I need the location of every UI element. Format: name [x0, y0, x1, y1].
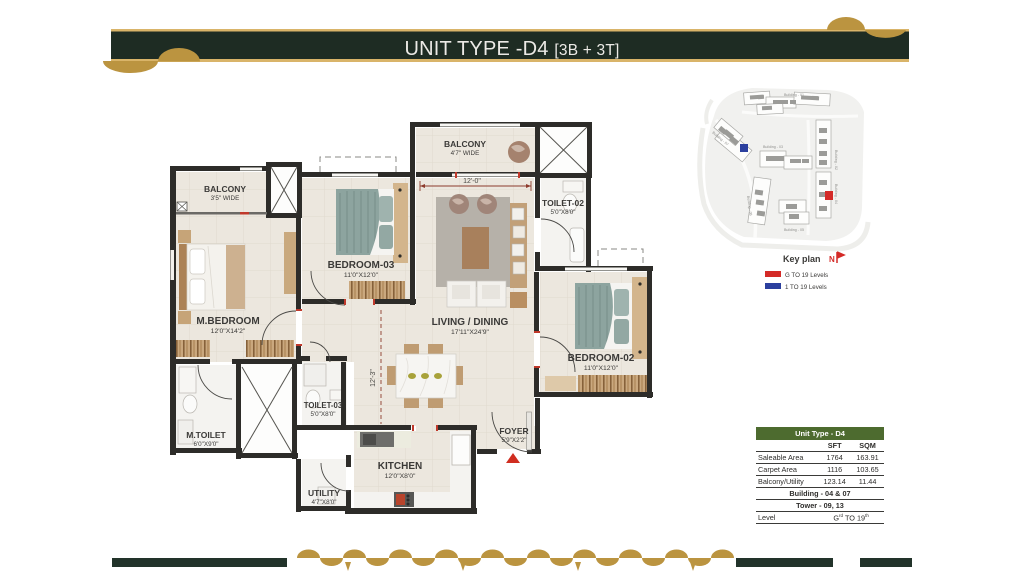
svg-text:BEDROOM-03: BEDROOM-03 — [328, 260, 395, 271]
svg-text:N: N — [829, 255, 835, 264]
svg-text:5'0"X8'0": 5'0"X8'0" — [550, 209, 575, 216]
svg-text:5'0"X8'0": 5'0"X8'0" — [310, 411, 335, 418]
svg-text:Building - 05: Building - 05 — [784, 228, 804, 232]
svg-text:BEDROOM-02: BEDROOM-02 — [568, 353, 635, 364]
svg-text:4'7" WIDE: 4'7" WIDE — [451, 150, 480, 157]
svg-text:12'-0": 12'-0" — [463, 178, 481, 185]
svg-text:Building - 01: Building - 01 — [784, 93, 804, 97]
svg-text:UNIT TYPE -D4 [3B + 3T]: UNIT TYPE -D4 [3B + 3T] — [405, 38, 620, 60]
svg-text:3'5" WIDE: 3'5" WIDE — [211, 195, 240, 202]
svg-text:LIVING / DINING: LIVING / DINING — [432, 317, 509, 328]
svg-text:KITCHEN: KITCHEN — [378, 461, 422, 472]
svg-text:17'11"X24'9": 17'11"X24'9" — [451, 329, 489, 336]
svg-text:Key plan: Key plan — [783, 254, 821, 264]
svg-text:M.BEDROOM: M.BEDROOM — [196, 316, 259, 327]
svg-text:Building - 03: Building - 03 — [763, 145, 783, 149]
svg-text:M.TOILET: M.TOILET — [186, 430, 226, 440]
svg-text:BALCONY: BALCONY — [444, 139, 486, 149]
svg-text:11'0"X12'0": 11'0"X12'0" — [584, 365, 619, 372]
svg-text:Building - 04: Building - 04 — [834, 184, 838, 204]
svg-text:12'-3": 12'-3" — [370, 369, 377, 387]
svg-text:TOILET-02: TOILET-02 — [542, 198, 584, 208]
svg-text:11'0"X12'0": 11'0"X12'0" — [344, 272, 379, 279]
svg-text:12'0"X14'2": 12'0"X14'2" — [211, 328, 246, 335]
svg-text:TOILET-03: TOILET-03 — [304, 401, 343, 410]
svg-text:FOYER: FOYER — [499, 426, 528, 436]
svg-text:4'7"X8'0": 4'7"X8'0" — [311, 499, 336, 506]
svg-text:12'0"X8'0": 12'0"X8'0" — [385, 473, 416, 480]
svg-text:5'9"X2'2": 5'9"X2'2" — [501, 437, 526, 444]
svg-text:BALCONY: BALCONY — [204, 184, 246, 194]
svg-text:Building - 02: Building - 02 — [834, 150, 838, 170]
svg-text:1 TO 19 Levels: 1 TO 19 Levels — [785, 284, 827, 291]
svg-text:6'0"X9'0": 6'0"X9'0" — [193, 441, 218, 448]
svg-text:G TO 19 Levels: G TO 19 Levels — [785, 272, 828, 279]
svg-text:UTILITY: UTILITY — [308, 488, 340, 498]
